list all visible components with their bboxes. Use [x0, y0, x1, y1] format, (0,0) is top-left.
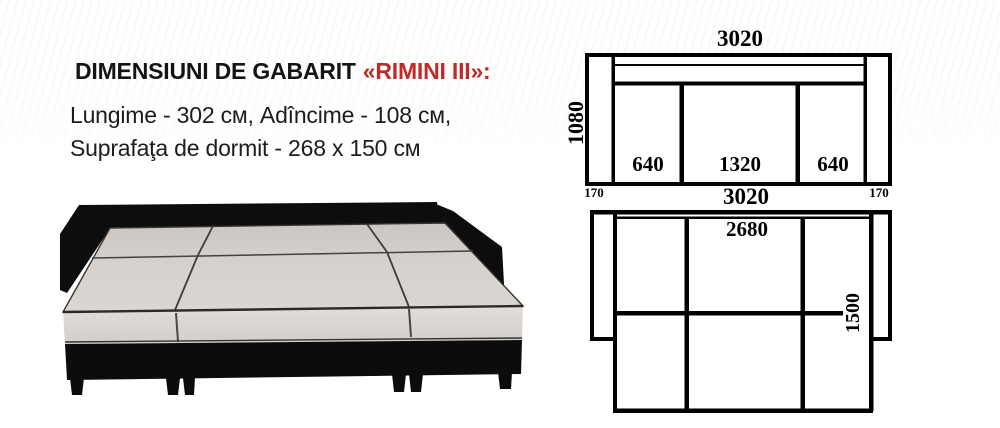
- front-height-label: 1080: [564, 73, 588, 173]
- sofa-base: [65, 340, 522, 380]
- front-seat-center-label: 1320: [690, 152, 790, 176]
- arm-right-width-label: 170: [849, 185, 909, 201]
- sofa-mattress: [63, 223, 523, 312]
- sleeping-depth-label: 1500: [842, 268, 864, 358]
- spec-text: Lungime - 302 см, Adîncime - 108 см, Sup…: [70, 99, 550, 165]
- sleeping-width-label: 2680: [647, 218, 847, 240]
- front-total-width-label: 3020: [640, 26, 840, 52]
- front-seat-right-label: 640: [783, 152, 883, 176]
- spec-line-2: Suprafaţa de dormit - 268 x 150 см: [70, 132, 550, 165]
- arm-left-width-label: 170: [564, 185, 624, 201]
- front-seat-left-label: 640: [598, 152, 698, 176]
- sofa-photo: [35, 190, 535, 405]
- bed-total-width-label: 3020: [646, 184, 846, 209]
- page: DIMENSIUNI DE GABARIT«RIMINI III»: Lungi…: [0, 0, 1000, 428]
- title-model: «RIMINI III»:: [363, 58, 491, 84]
- spec-line-1: Lungime - 302 см, Adîncime - 108 см,: [70, 99, 550, 132]
- page-title: DIMENSIUNI DE GABARIT«RIMINI III»:: [75, 58, 545, 85]
- title-prefix: DIMENSIUNI DE GABARIT: [75, 58, 356, 84]
